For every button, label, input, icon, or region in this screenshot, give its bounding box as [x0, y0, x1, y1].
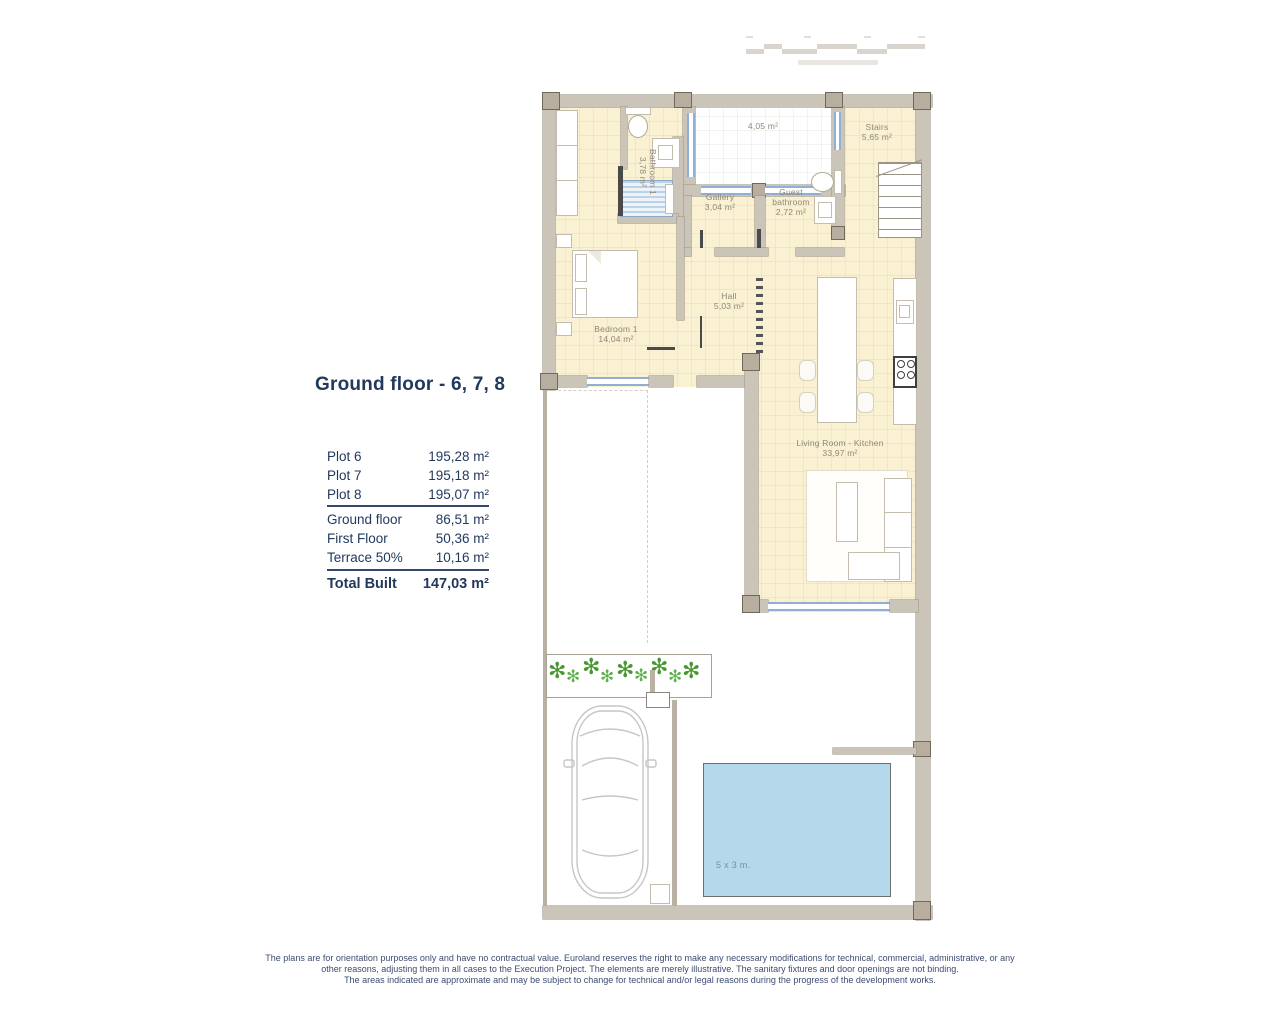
coffee-table-icon	[836, 482, 858, 542]
wall-living-bottom	[890, 600, 918, 612]
pier	[826, 93, 842, 107]
sink-icon	[658, 145, 673, 160]
breakdown-label: First Floor	[327, 531, 388, 546]
total-row: Total Built 147,03 m²	[327, 576, 489, 592]
plot-label: Plot 8	[327, 487, 362, 502]
room-area: 4,05 m²	[748, 121, 778, 131]
terrace-outline	[548, 390, 648, 643]
page-title: Ground floor - 6, 7, 8	[315, 374, 505, 396]
patio-floor	[695, 107, 833, 187]
total-label: Total Built	[327, 576, 397, 592]
wall-top	[543, 95, 932, 107]
pier	[914, 742, 930, 756]
kitchen-sink-icon	[899, 305, 910, 318]
wardrobe-icon	[556, 145, 578, 181]
toilet-icon	[628, 115, 648, 138]
door-leaf	[647, 347, 675, 350]
plant-icon	[600, 668, 614, 685]
plot-value: 195,18 m²	[428, 468, 489, 483]
wall-left	[543, 95, 555, 390]
burner-icon	[897, 360, 905, 368]
plant-icon	[566, 668, 580, 685]
wall-gallery-left	[683, 196, 691, 256]
nightstand-icon	[556, 234, 572, 248]
chair-icon	[799, 360, 816, 381]
room-label-stairs: Stairs 5,65 m²	[849, 122, 905, 142]
living-window	[768, 602, 890, 611]
toilet-icon	[834, 170, 842, 194]
nightstand-icon	[556, 322, 572, 336]
disclaimer-line: other reasons, adjusting them in all cas…	[0, 964, 1280, 975]
pier	[914, 93, 930, 109]
room-area: 33,97 m²	[780, 448, 900, 458]
hatch-marker	[756, 278, 763, 358]
plant-icon	[616, 659, 634, 681]
wall-living-left	[745, 356, 758, 612]
shower-screen	[618, 166, 623, 216]
wall-room-bottom	[683, 248, 691, 256]
chair-icon	[857, 392, 874, 413]
pier	[675, 93, 691, 107]
plant-icon	[548, 660, 566, 682]
divider	[327, 505, 489, 507]
shower-door	[665, 184, 674, 214]
dining-table-icon	[817, 277, 857, 423]
breakdown-value: 86,51 m²	[436, 512, 489, 527]
breakdown-row: First Floor 50,36 m²	[327, 531, 489, 546]
sofa-icon	[884, 512, 912, 548]
room-area: 3,78 m²	[638, 142, 648, 202]
plot-value: 195,28 m²	[428, 449, 489, 464]
pier	[914, 902, 930, 919]
plant-icon	[634, 667, 648, 684]
pier	[832, 227, 844, 239]
room-name: Guest bathroom	[763, 187, 819, 207]
room-label-hall: Hall 5,03 m²	[702, 291, 756, 311]
plot-value: 195,07 m²	[428, 487, 489, 502]
breakdown-row: Ground floor 86,51 m²	[327, 512, 489, 527]
disclaimer-line: The plans are for orientation purposes o…	[0, 953, 1280, 964]
door-leaf	[700, 230, 703, 248]
room-name: Living Room - Kitchen	[780, 438, 900, 448]
wall-hall-bottom	[697, 376, 748, 387]
room-name: Gallery	[692, 192, 748, 202]
door-leaf	[757, 229, 761, 248]
wall-room-bottom	[715, 248, 768, 256]
room-name: Stairs	[849, 122, 905, 132]
chair-icon	[799, 392, 816, 413]
burner-icon	[907, 371, 915, 379]
room-name: Bathroom 1	[648, 142, 658, 202]
chair-icon	[857, 360, 874, 381]
wall-room-bottom	[796, 248, 844, 256]
plot-row: Plot 8 195,07 m²	[327, 487, 489, 502]
pillow-icon	[575, 288, 587, 315]
disclaimer-line: The areas indicated are approximate and …	[0, 975, 1280, 986]
pier	[541, 374, 557, 389]
pier	[743, 596, 759, 612]
burner-icon	[897, 371, 905, 379]
room-area: 2,72 m²	[763, 207, 819, 217]
patio-window	[687, 113, 695, 177]
plot-row: Plot 6 195,28 m²	[327, 449, 489, 464]
breakdown-label: Terrace 50%	[327, 550, 403, 565]
pier	[543, 93, 559, 109]
pillow-icon	[575, 254, 587, 282]
plot-label: Plot 6	[327, 449, 362, 464]
plant-icon	[668, 668, 682, 685]
wall-bathroom-left	[621, 107, 627, 169]
room-area: 14,04 m²	[586, 334, 646, 344]
room-label-bathroom1: Bathroom 1 3,78 m²	[636, 142, 658, 202]
room-label-guest-bathroom: Guest bathroom 2,72 m²	[763, 187, 819, 217]
total-value: 147,03 m²	[423, 576, 489, 592]
wall-garden-left	[543, 388, 547, 906]
plant-icon	[582, 656, 600, 678]
divider	[327, 569, 489, 571]
garden-wall	[672, 700, 677, 906]
room-name: Hall	[702, 291, 756, 301]
toilet-icon	[625, 107, 651, 115]
garden-wall	[833, 748, 916, 754]
pool	[703, 763, 891, 897]
floor-plan-page: Ground floor - 6, 7, 8 Plot 6 195,28 m² …	[0, 0, 1280, 1024]
breakdown-label: Ground floor	[327, 512, 402, 527]
room-label-living-kitchen: Living Room - Kitchen 33,97 m²	[780, 438, 900, 458]
car-icon	[558, 702, 662, 902]
breakdown-value: 10,16 m²	[436, 550, 489, 565]
breakdown-value: 50,36 m²	[436, 531, 489, 546]
plot-row: Plot 7 195,18 m²	[327, 468, 489, 483]
stairs-window	[834, 112, 841, 150]
door-leaf	[700, 316, 702, 348]
plant-icon	[682, 660, 700, 682]
breakdown-row: Terrace 50% 10,16 m²	[327, 550, 489, 565]
room-area: 5,65 m²	[849, 132, 905, 142]
wall-bedroom-bottom	[649, 376, 673, 387]
sheet-fold	[588, 251, 601, 264]
pool-label: 5 x 3 m.	[716, 860, 750, 870]
sofa-icon	[848, 552, 900, 580]
burner-icon	[907, 360, 915, 368]
wall-bottom	[543, 906, 932, 919]
room-area: 5,03 m²	[702, 301, 756, 311]
room-label-patio: 4,05 m²	[727, 121, 799, 131]
bedroom-window	[587, 377, 649, 386]
sink-icon	[818, 202, 832, 218]
room-name: Bedroom 1	[586, 324, 646, 334]
wall-bedroom-right	[677, 217, 684, 320]
room-label-gallery: Gallery 3,04 m²	[692, 192, 748, 212]
plot-label: Plot 7	[327, 468, 362, 483]
room-area: 3,04 m²	[692, 202, 748, 212]
room-label-bedroom1: Bedroom 1 14,04 m²	[586, 324, 646, 344]
